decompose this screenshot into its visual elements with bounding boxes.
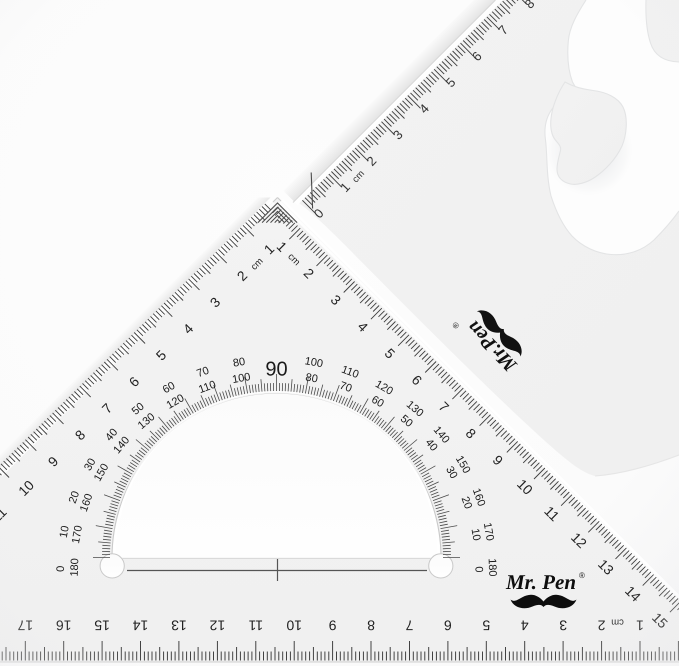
svg-text:90: 90 — [265, 359, 287, 381]
svg-text:3: 3 — [559, 618, 567, 634]
svg-text:Mr. Pen: Mr. Pen — [505, 570, 576, 594]
svg-text:13: 13 — [171, 618, 187, 634]
svg-text:1: 1 — [636, 618, 644, 634]
svg-text:5: 5 — [482, 618, 490, 634]
svg-text:10: 10 — [58, 525, 72, 539]
svg-text:0: 0 — [55, 566, 67, 573]
svg-text:14: 14 — [133, 618, 149, 634]
svg-text:6: 6 — [444, 618, 452, 634]
svg-text:10: 10 — [468, 528, 482, 542]
svg-text:9: 9 — [328, 618, 336, 634]
svg-text:10: 10 — [286, 618, 302, 634]
svg-text:15: 15 — [94, 618, 110, 634]
svg-text:4: 4 — [521, 618, 529, 634]
svg-text:7: 7 — [405, 618, 413, 634]
svg-text:80: 80 — [305, 372, 319, 386]
svg-text:180: 180 — [69, 558, 82, 577]
svg-text:16: 16 — [56, 618, 72, 634]
svg-text:®: ® — [579, 571, 585, 580]
svg-text:80: 80 — [232, 356, 246, 370]
svg-text:180: 180 — [486, 558, 499, 577]
svg-text:2: 2 — [597, 618, 605, 634]
svg-text:0: 0 — [472, 566, 484, 573]
svg-text:12: 12 — [209, 618, 225, 634]
svg-text:8: 8 — [367, 618, 375, 634]
svg-text:cm: cm — [611, 617, 624, 628]
svg-text:11: 11 — [248, 618, 263, 634]
svg-text:17: 17 — [17, 618, 33, 634]
